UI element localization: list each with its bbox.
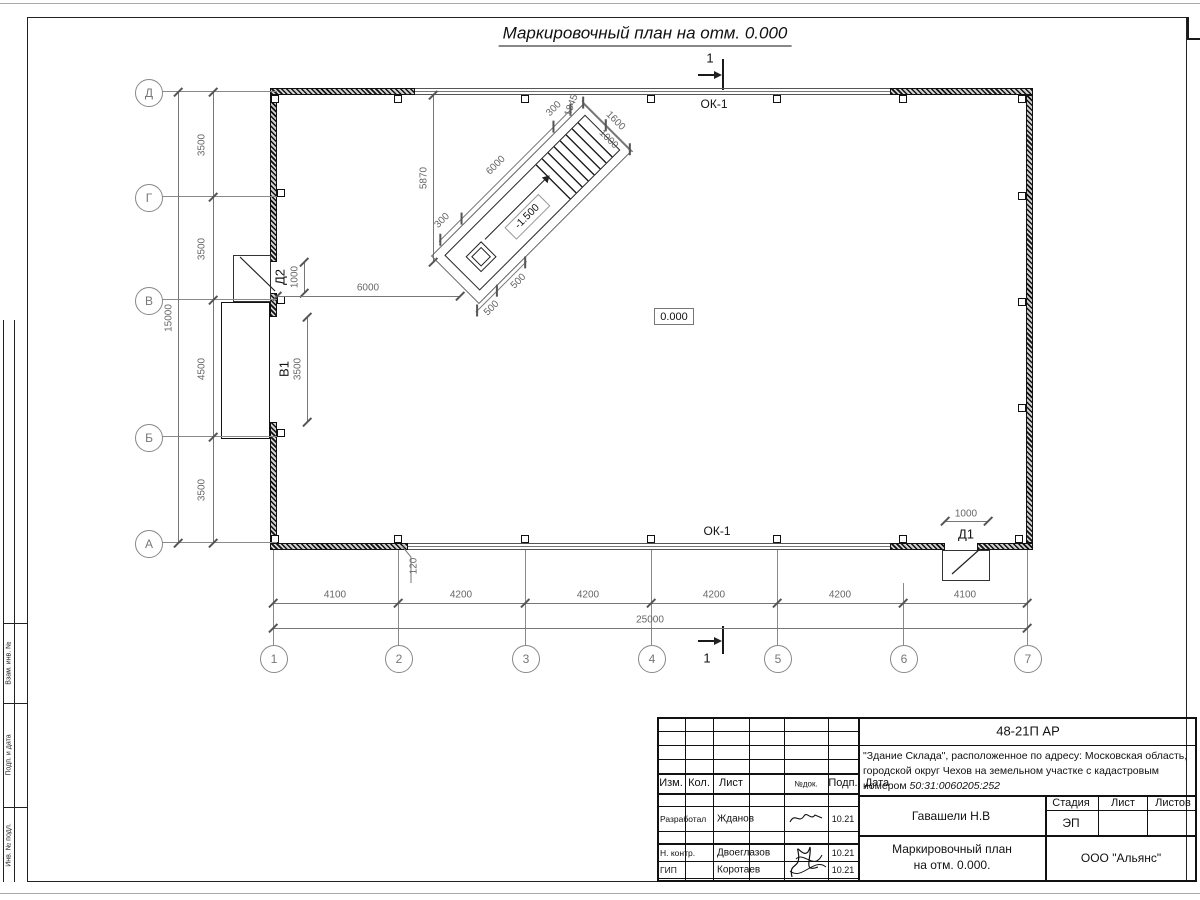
door-d1-dimline — [945, 521, 988, 522]
tb-desc-line1: "Здание Склада", расположенное по адресу… — [863, 749, 1193, 764]
frame-corner-notch-h — [1187, 38, 1200, 40]
tb-role-nkontr: Н. контр. — [660, 848, 695, 858]
axis-letter: Г — [146, 191, 153, 205]
wall-bottom-right — [977, 543, 1033, 550]
bottom-dim: 4200 — [703, 590, 725, 601]
bottom-dim: 4200 — [577, 590, 599, 601]
tb-stage-value: ЭП — [1062, 816, 1079, 830]
column-marker — [277, 429, 285, 437]
tb-role-gip: ГИП — [660, 865, 677, 875]
side-stamp-label: Взам. инв. № — [6, 641, 13, 684]
frame-corner-notch-v — [1187, 17, 1189, 38]
gate-v1-platform — [221, 302, 270, 439]
tb-desc-line2: городской округ Чехов на земельном участ… — [863, 764, 1193, 779]
door-d2-vestibule — [233, 255, 271, 302]
column-marker — [773, 95, 781, 103]
left-dim: 3500 — [197, 238, 208, 260]
axis-number: 7 — [1025, 652, 1032, 666]
bottom-dim: 4200 — [829, 590, 851, 601]
door-d1-platform — [942, 550, 990, 581]
axis-bubble-2: 2 — [385, 645, 413, 673]
tb-drawing-name: Маркировочный план на отм. 0.000. — [863, 841, 1041, 873]
column-marker — [899, 95, 907, 103]
axis-letter: Д — [145, 86, 153, 100]
tb-date-2: 10.21 — [832, 848, 855, 858]
tb-role-razrabotal: Разработал — [660, 814, 706, 824]
axis-number: 5 — [775, 652, 782, 666]
door-d1-label: Д1 — [958, 527, 974, 542]
column-marker — [647, 535, 655, 543]
tb-sheets-label: Листов — [1155, 797, 1191, 809]
column-marker — [521, 95, 529, 103]
section-mark-bottom-tick — [722, 626, 724, 654]
tb-col-ndok: №док. — [794, 780, 817, 789]
signature-korotaev-dvoeglazov — [784, 841, 830, 883]
section-number-top: 1 — [706, 51, 713, 66]
sheet-bottom-edge — [0, 893, 1200, 894]
tb-col-kol: Кол. — [688, 777, 710, 789]
bottom-total-dim: 25000 — [636, 615, 664, 626]
axis-bubble-g: Г — [135, 184, 163, 212]
tb-stage-label: Стадия — [1052, 797, 1090, 809]
window-label-bottom: ОК-1 — [704, 524, 731, 538]
stair-wall-dim: 6000 — [357, 283, 379, 294]
left-dim: 3500 — [197, 134, 208, 156]
section-arrow-top-icon — [714, 71, 722, 79]
sheet-top-edge — [0, 3, 1200, 4]
dim-5870-line — [433, 95, 434, 262]
tb-desc-line3: номером 50:31:0060205:252 — [863, 779, 1193, 794]
side-stamp-label: Инв. № подл. — [6, 823, 13, 867]
axis-letter: В — [145, 294, 153, 308]
column-marker — [394, 95, 402, 103]
axis-bubble-d: Д — [135, 79, 163, 107]
column-marker — [1015, 535, 1023, 543]
tb-date-1: 10.21 — [832, 814, 855, 824]
side-stamp-label: Подп. и дата — [6, 734, 13, 775]
door-d2-label: Д2 — [273, 269, 288, 285]
axis-number: 3 — [523, 652, 530, 666]
gate-v1-label: В1 — [277, 361, 292, 377]
left-total-dim: 15000 — [164, 304, 175, 332]
wall-right — [1026, 95, 1033, 543]
column-marker — [773, 535, 781, 543]
column-marker — [1018, 192, 1026, 200]
axis-bubble-6: 6 — [890, 645, 918, 673]
column-marker — [1018, 404, 1026, 412]
gate-v1-dim: 3500 — [293, 358, 304, 380]
tb-name-dvoeglazov: Двоеглазов — [717, 848, 770, 859]
door-d1-dim: 1000 — [955, 509, 977, 520]
tb-col-izm: Изм. — [659, 777, 683, 789]
column-marker — [277, 296, 285, 304]
column-marker — [1018, 95, 1026, 103]
level-mark-value: 0.000 — [660, 311, 688, 323]
axis-number: 2 — [396, 652, 403, 666]
axis-bubble-v: В — [135, 287, 163, 315]
axis-bubble-5: 5 — [764, 645, 792, 673]
left-dim: 3500 — [197, 479, 208, 501]
column-marker — [277, 189, 285, 197]
window-band-top — [415, 88, 890, 95]
axis-letter: А — [145, 537, 153, 551]
wall-left-lower — [270, 422, 277, 543]
tb-project-desc: "Здание Склада", расположенное по адресу… — [863, 749, 1193, 794]
wall-top-right — [890, 88, 1033, 95]
stair-wall-dimline — [277, 296, 460, 297]
wall-bottom-mid — [890, 543, 945, 550]
bottom-dim: 4100 — [324, 590, 346, 601]
dim-5870: 5870 — [419, 167, 430, 189]
axis-bubble-3: 3 — [512, 645, 540, 673]
section-arrow-bottom-icon — [714, 637, 722, 645]
tb-engineer: Гавашели Н.В — [912, 809, 990, 823]
signature-zhdanov — [787, 810, 825, 828]
tb-name-zhdanov: Жданов — [717, 814, 754, 825]
window-band-bottom — [408, 543, 890, 550]
window-label-top: ОК-1 — [701, 97, 728, 111]
axis-letter: Б — [145, 431, 153, 445]
tb-col-list: Лист — [719, 777, 743, 789]
wall-top-left — [270, 88, 415, 95]
left-dim: 4500 — [197, 358, 208, 380]
wall-left-upper — [270, 95, 277, 262]
axis-number: 4 — [649, 652, 656, 666]
bottom-dim: 4200 — [450, 590, 472, 601]
axis-bubble-a: А — [135, 530, 163, 558]
column-marker — [394, 535, 402, 543]
door-d2-dim: 1000 — [290, 266, 301, 288]
axis-bubble-1: 1 — [260, 645, 288, 673]
drawing-sheet: Взам. инв. № Подп. и дата Инв. № подл. М… — [0, 0, 1200, 900]
drawing-title: Маркировочный план на отм. 0.000 — [499, 24, 792, 47]
dim-120: 120 — [409, 558, 420, 575]
section-number-bottom: 1 — [703, 651, 710, 666]
column-marker — [1018, 298, 1026, 306]
tb-col-podp: Подп. — [828, 777, 857, 789]
axis-number: 6 — [901, 652, 908, 666]
door-d2-dimline — [304, 262, 305, 293]
tb-company: ООО "Альянс" — [1081, 851, 1161, 865]
axis-bubble-4: 4 — [638, 645, 666, 673]
tb-doc-code: 48-21П АР — [996, 724, 1060, 739]
side-stamp: Взам. инв. № Подп. и дата Инв. № подл. — [0, 320, 27, 882]
title-block: Изм. Кол. Лист №док. Подп. Дата Разработ… — [657, 717, 1197, 882]
bottom-dim: 4100 — [954, 590, 976, 601]
tb-sheet-label: Лист — [1111, 797, 1135, 809]
tb-name-korotaev: Коротаев — [717, 865, 760, 876]
axis-number: 1 — [271, 652, 278, 666]
column-marker — [899, 535, 907, 543]
section-mark-top-tick — [722, 59, 724, 90]
gate-v1-dimline — [307, 317, 308, 422]
tb-date-3: 10.21 — [832, 865, 855, 875]
axis-bubble-b: Б — [135, 424, 163, 452]
axis-bubble-7: 7 — [1014, 645, 1042, 673]
column-marker — [521, 535, 529, 543]
column-marker — [271, 95, 279, 103]
column-marker — [647, 95, 655, 103]
wall-bottom-left — [270, 543, 408, 550]
